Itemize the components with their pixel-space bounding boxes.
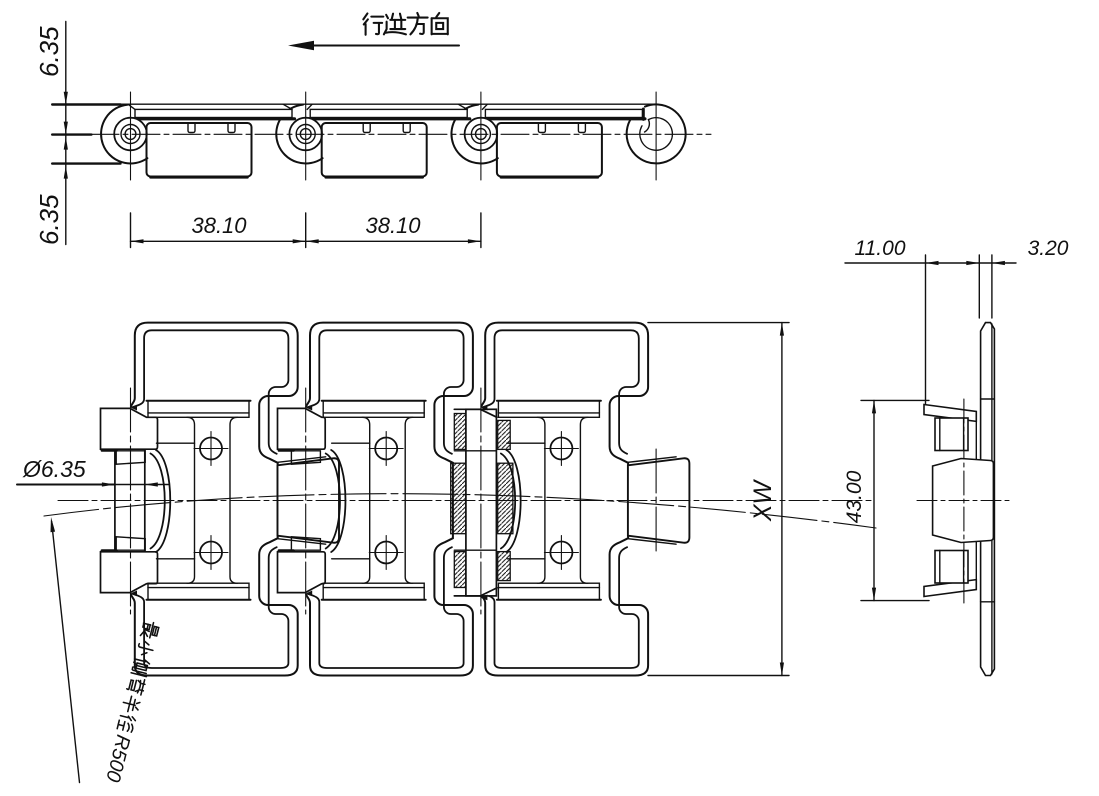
svg-text:6.35: 6.35 bbox=[34, 26, 64, 77]
svg-text:6.35: 6.35 bbox=[34, 194, 64, 245]
svg-text:43.00: 43.00 bbox=[843, 470, 866, 523]
svg-text:38.10: 38.10 bbox=[191, 213, 247, 238]
svg-text:Ø6.35: Ø6.35 bbox=[22, 456, 86, 482]
svg-text:38.10: 38.10 bbox=[365, 213, 421, 238]
svg-text:3.20: 3.20 bbox=[1028, 237, 1069, 260]
svg-text:XW: XW bbox=[749, 478, 777, 522]
svg-text:11.00: 11.00 bbox=[855, 237, 906, 260]
